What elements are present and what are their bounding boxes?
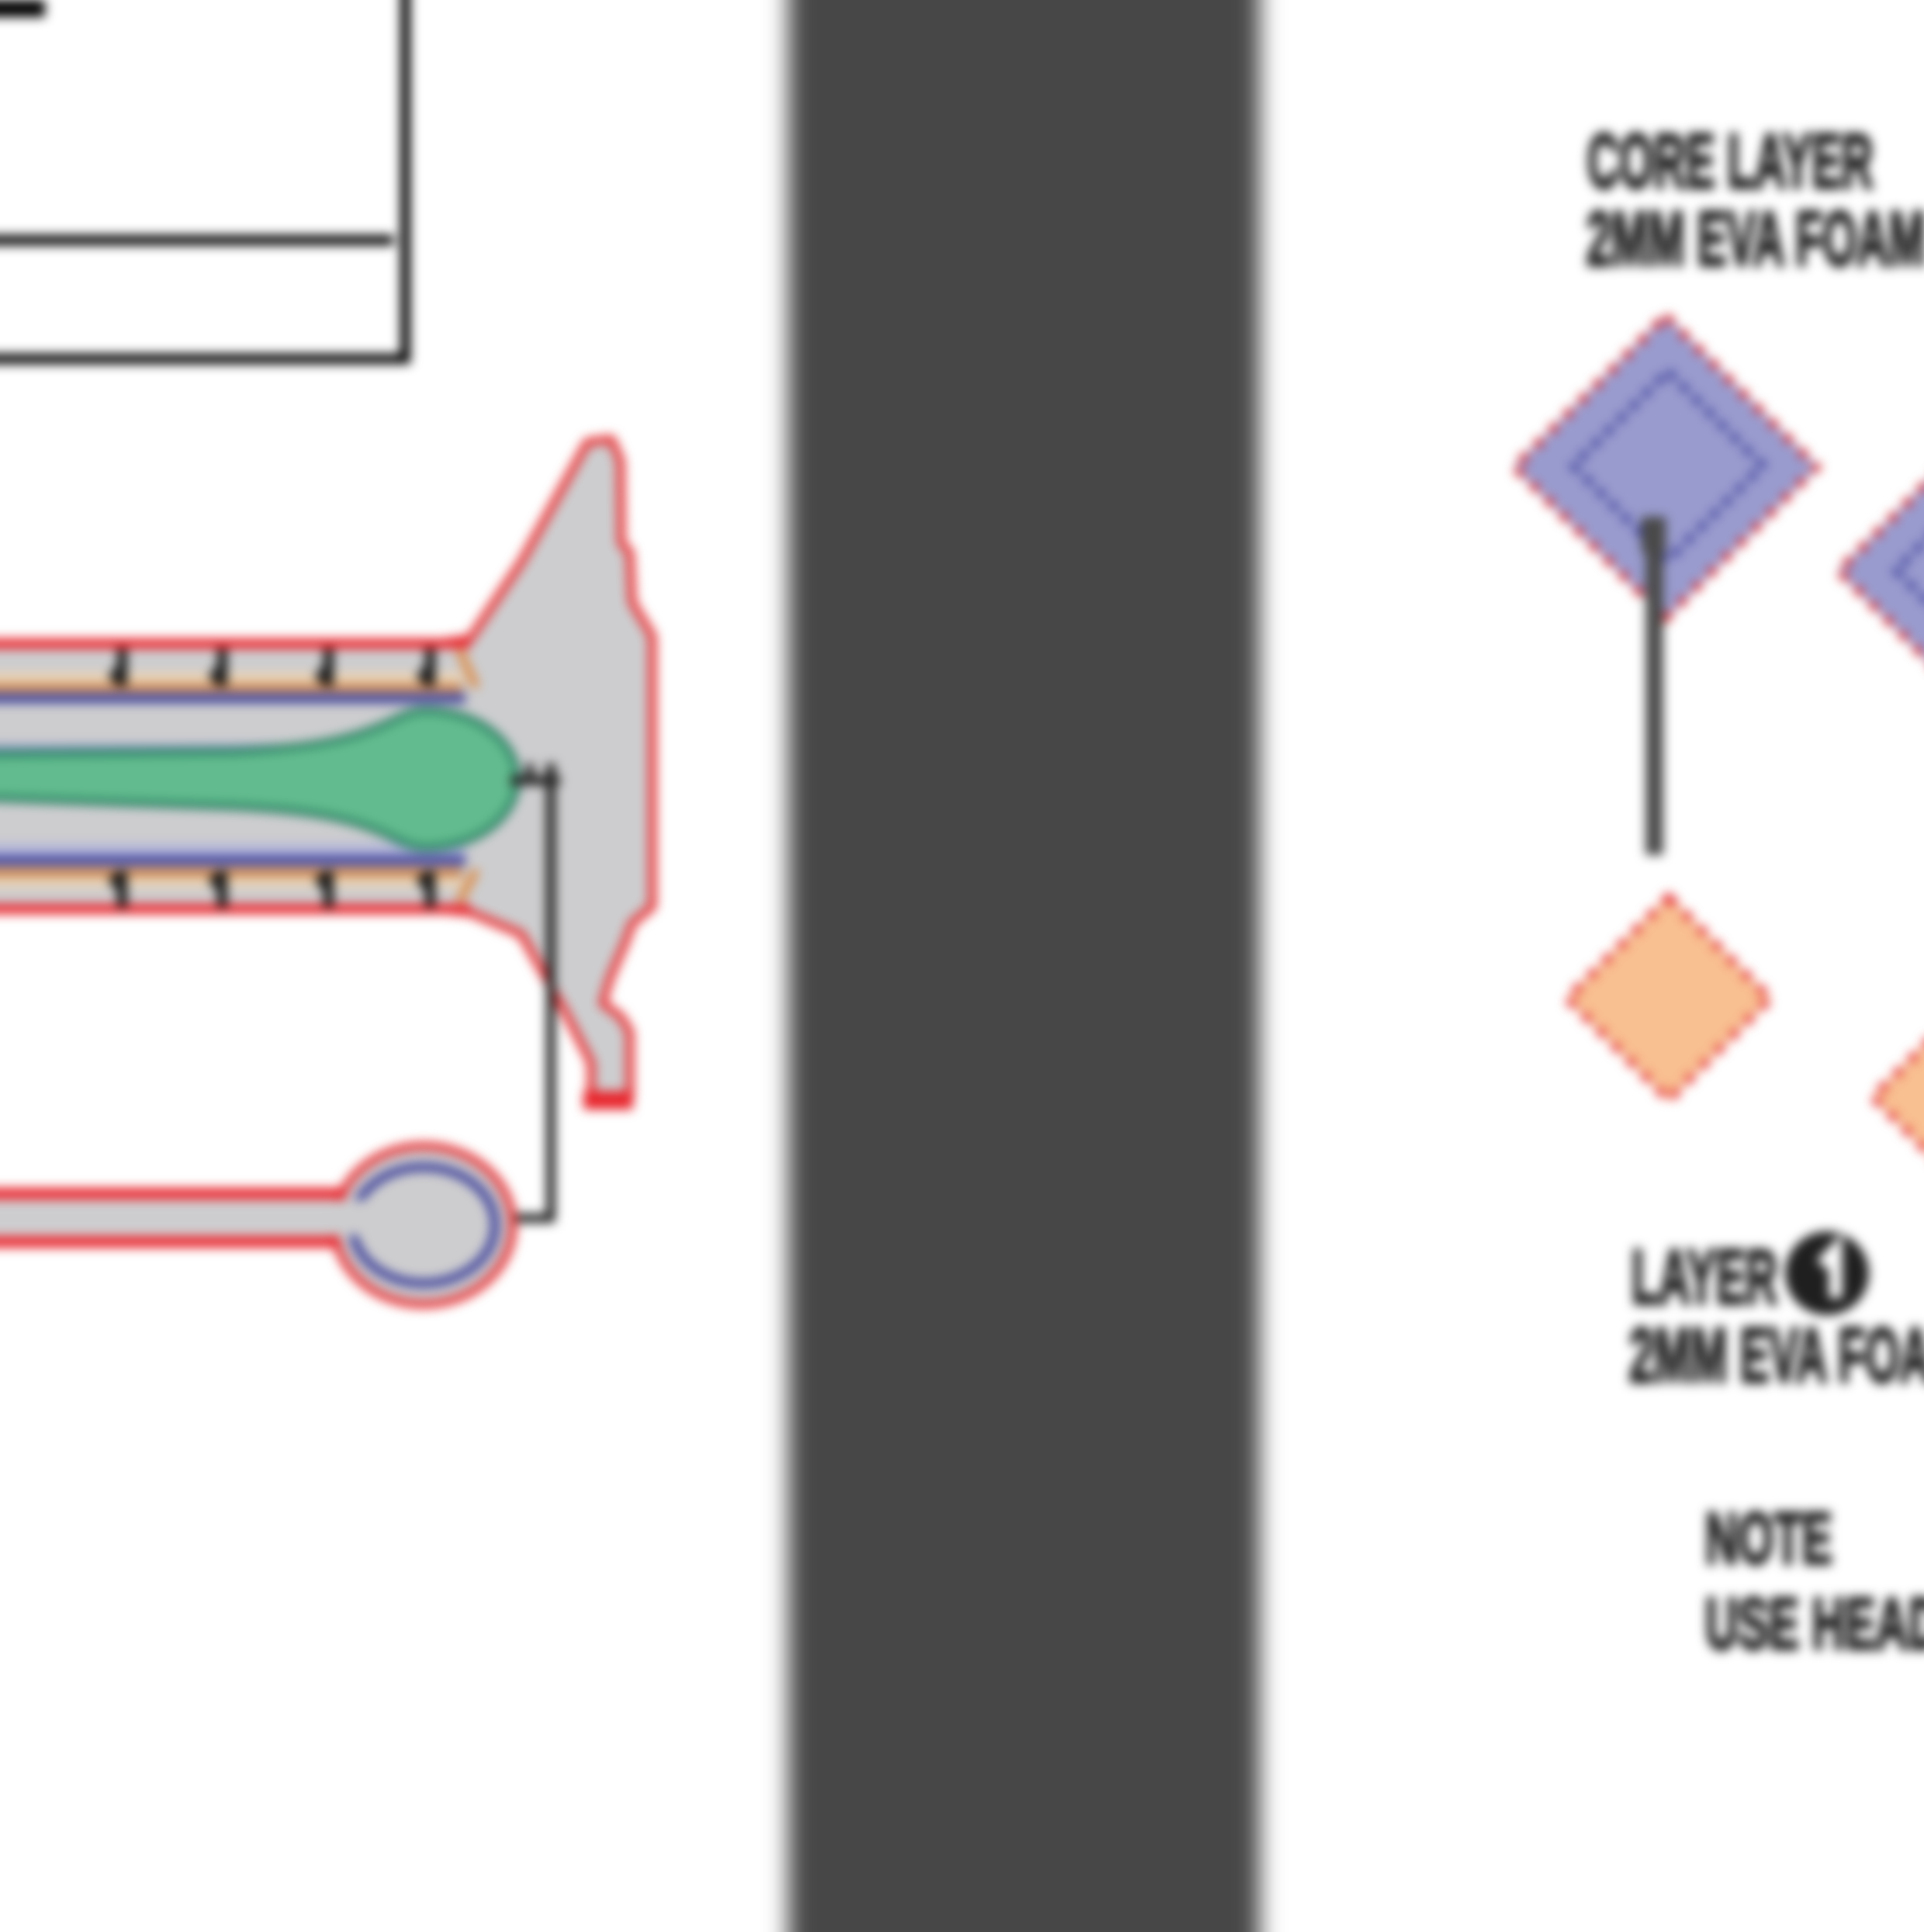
svg-text:LAYER: LAYER <box>1632 1234 1777 1321</box>
svg-text:2MM EVA FOAM: 2MM EVA FOAM <box>1629 1312 1924 1399</box>
svg-text:NOTE: NOTE <box>1705 1496 1832 1579</box>
svg-text:2MM EVA FOAM: 2MM EVA FOAM <box>1587 196 1924 282</box>
svg-text:USE HEADER: USE HEADER <box>1705 1581 1924 1664</box>
svg-text:CORE LAYER: CORE LAYER <box>1587 118 1873 205</box>
